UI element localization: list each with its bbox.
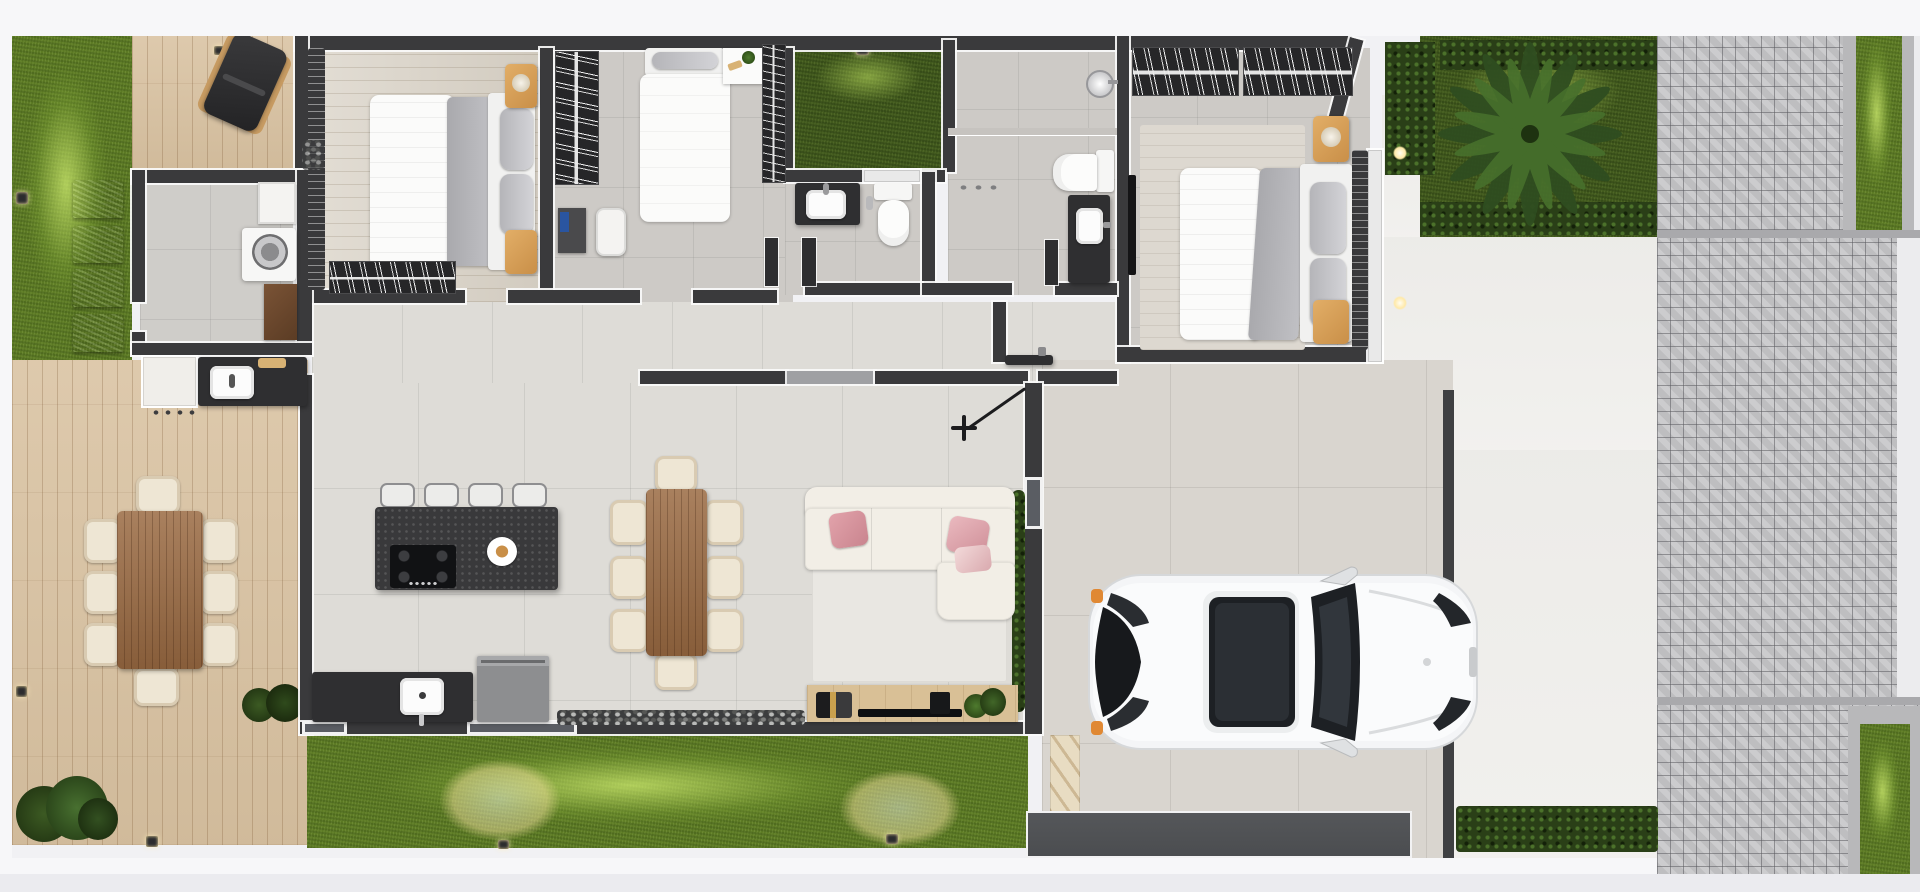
page-margin-top-right <box>1657 0 1920 14</box>
sliding-door <box>787 371 875 384</box>
dining-chair <box>655 456 697 492</box>
master-curtain <box>1352 150 1368 350</box>
outdoor-cabinet <box>143 357 196 406</box>
dining-chair <box>610 609 648 652</box>
deck-light <box>146 836 158 847</box>
dining-table <box>646 489 707 656</box>
closet-rail <box>763 45 785 182</box>
kitchen-left-wall <box>300 375 312 734</box>
lawn-light <box>886 834 898 844</box>
lawn-light <box>498 840 509 849</box>
shower-controls <box>956 182 1002 193</box>
single-bed <box>640 74 730 222</box>
desk-plant <box>742 51 755 64</box>
pink-pillow <box>828 510 870 550</box>
floor-plan <box>0 0 1920 892</box>
storage-cabinet <box>264 284 297 340</box>
toilet-tank <box>874 183 912 200</box>
dining-chair <box>655 653 697 690</box>
bidet-sprayer <box>866 196 873 210</box>
potted-plant <box>16 776 120 848</box>
page-margin-bottom-band <box>0 874 1920 892</box>
ensuite-bottom-wall <box>922 283 1012 295</box>
office-chair <box>596 208 626 256</box>
stepping-stone <box>73 180 123 218</box>
courtyard-right-wall <box>943 40 955 172</box>
faucet <box>229 374 235 388</box>
page-margin-left <box>0 36 12 858</box>
dining-chair <box>705 500 743 545</box>
bar-stool <box>512 483 547 508</box>
dining-chair <box>610 556 648 599</box>
potted-plant <box>242 684 304 726</box>
toilet-tank <box>1096 150 1114 192</box>
courtyard-grass <box>793 40 943 172</box>
page-margin-top <box>0 0 1920 36</box>
cooktop-knobs <box>408 581 438 586</box>
bar-stool <box>380 483 415 508</box>
living-garage-wall <box>1025 383 1042 734</box>
utility-ledge <box>1005 355 1053 365</box>
dining-chair <box>705 556 743 599</box>
outdoor-chair <box>136 476 180 514</box>
sink-drain <box>419 692 426 699</box>
palm-tree <box>1418 22 1643 242</box>
bedroom2-door <box>765 238 778 286</box>
entry-steps <box>1050 735 1080 813</box>
stepping-stone <box>73 269 123 307</box>
serving-plate <box>487 537 517 566</box>
outdoor-chair <box>84 571 121 614</box>
wall-tv <box>1128 175 1136 275</box>
bathroom-bottom-wall <box>805 283 922 295</box>
outdoor-chair <box>201 519 238 563</box>
corridor-top-wall <box>508 290 640 303</box>
front-hedge-strip <box>1456 806 1658 852</box>
corridor-top-wall <box>693 290 777 303</box>
nightstand-decor <box>512 74 530 92</box>
lawn-glow <box>840 770 960 846</box>
pebble-strip <box>302 140 324 170</box>
nightstand <box>505 230 537 274</box>
outdoor-chair <box>84 519 121 563</box>
shower-partition <box>948 128 1117 135</box>
dining-chair <box>705 609 743 652</box>
bathroom-window <box>864 170 920 182</box>
bar-stool <box>424 483 459 508</box>
toilet-bowl <box>878 200 909 246</box>
lawn-glow <box>440 760 560 840</box>
pillow <box>1310 182 1346 254</box>
corner-planter-grass <box>1860 724 1910 874</box>
pillow <box>500 108 533 170</box>
laundry-left-wall <box>132 170 145 302</box>
stepping-stone <box>73 226 123 263</box>
shower-head <box>1086 70 1114 98</box>
tap <box>1038 347 1046 356</box>
corridor-stub-wall <box>993 302 1006 362</box>
dining-chair <box>610 500 648 545</box>
console-decor <box>816 692 852 718</box>
pillow <box>652 52 718 69</box>
pink-pillow <box>954 544 993 574</box>
faucet <box>823 183 829 195</box>
bedroom1-bedroom2-wall <box>540 48 553 302</box>
shower-arm <box>1108 80 1118 84</box>
deck-light <box>16 686 27 697</box>
walkway-light <box>1393 296 1407 310</box>
nightstand-decor <box>1321 127 1341 147</box>
faucet <box>419 714 424 726</box>
cutting-board <box>258 358 286 368</box>
outdoor-chair <box>84 623 121 666</box>
washer-drum <box>252 234 288 270</box>
wardrobe-rail <box>330 262 455 293</box>
sidewalk-grass-verge <box>1856 18 1902 230</box>
fridge <box>477 656 549 722</box>
ensuite-door <box>1045 240 1058 285</box>
bathroom-divider-wall <box>922 172 935 295</box>
master-closet-rail <box>1133 48 1238 95</box>
window-frame <box>302 721 347 735</box>
laundry-bottom-wall <box>132 343 312 355</box>
master-right-wall <box>1368 150 1382 362</box>
ensuite-sink <box>1076 208 1103 244</box>
white-suv <box>1083 563 1485 761</box>
sidewalk-seam <box>1657 230 1920 238</box>
pebble-strip <box>557 710 805 725</box>
corridor-bottom-wall <box>1038 371 1117 384</box>
bedroom1-duvet <box>447 97 492 266</box>
outdoor-chair <box>134 668 179 706</box>
sidewalk-seam <box>1657 697 1920 705</box>
corridor-bottom-wall <box>640 371 787 384</box>
faucet <box>1103 222 1111 228</box>
sidewalk-curb <box>1843 18 1856 232</box>
utensil-hooks <box>150 407 198 418</box>
sidewalk-curb <box>1902 18 1914 232</box>
ensuite-bottom-wall <box>1055 283 1117 295</box>
bar-stool <box>468 483 503 508</box>
fridge-handle <box>481 660 545 663</box>
kitchen-counter <box>312 672 473 722</box>
corridor-bottom-wall <box>875 371 1028 384</box>
garden-light <box>16 192 28 204</box>
ceiling-fan-icon <box>950 414 978 442</box>
laundry-cabinet <box>258 182 296 224</box>
bedroom1-bed <box>370 95 455 268</box>
master-closet-rail <box>1244 48 1352 95</box>
outdoor-chair <box>201 623 238 666</box>
pillow <box>500 174 533 234</box>
books <box>560 212 569 232</box>
console-plant <box>964 688 1006 722</box>
garage-gate <box>1028 813 1410 856</box>
garage-door-frame <box>1024 477 1043 529</box>
walkway-light <box>1393 146 1407 160</box>
outdoor-dining-table <box>117 511 203 669</box>
stepping-stone <box>73 314 123 352</box>
sidewalk-edge <box>1897 238 1920 697</box>
outdoor-chair <box>201 571 238 614</box>
closet-rail <box>556 52 598 184</box>
bathroom-door <box>802 238 816 286</box>
toilet-bowl <box>1053 154 1097 191</box>
console-decor <box>930 692 950 714</box>
nightstand <box>1313 300 1349 344</box>
